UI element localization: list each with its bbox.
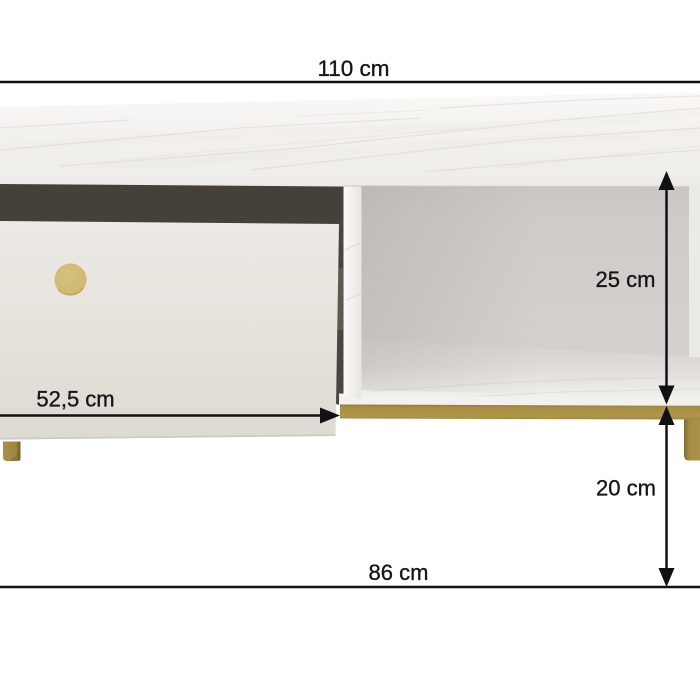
svg-text:86 cm: 86 cm (369, 560, 429, 585)
svg-text:25 cm: 25 cm (596, 267, 656, 292)
svg-text:20 cm: 20 cm (596, 476, 656, 501)
svg-text:110 cm: 110 cm (317, 56, 389, 81)
svg-text:52,5 cm: 52,5 cm (36, 387, 114, 412)
